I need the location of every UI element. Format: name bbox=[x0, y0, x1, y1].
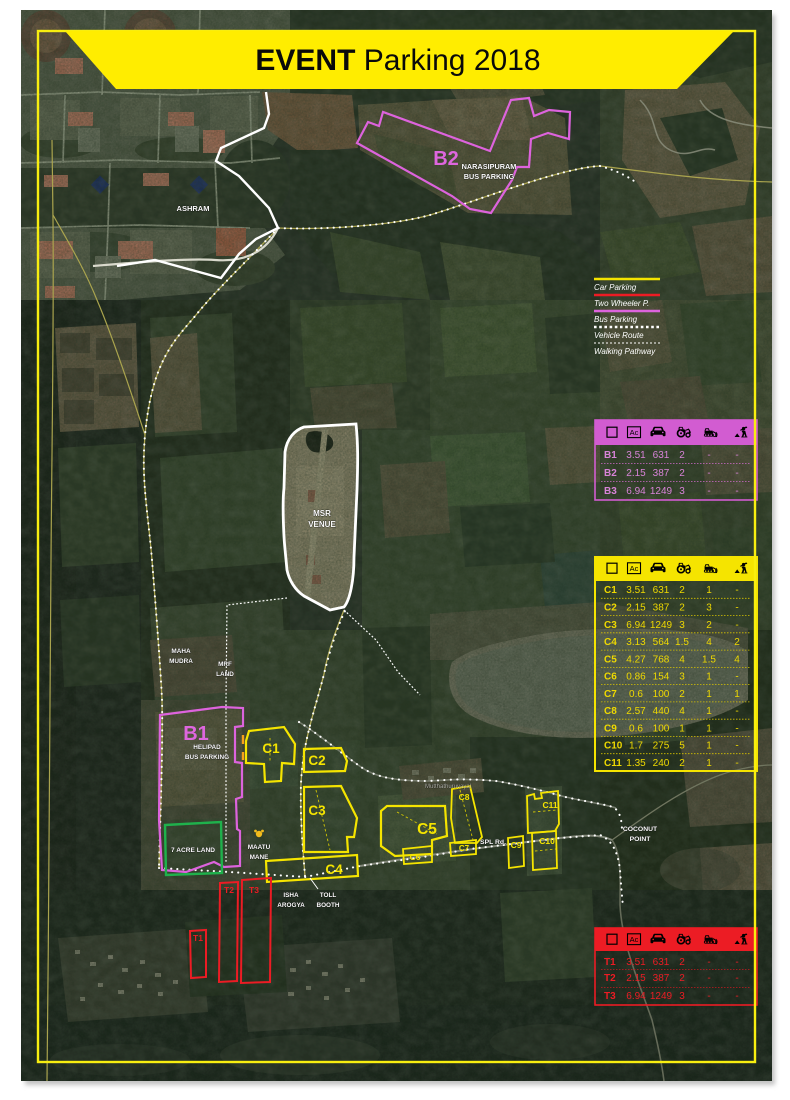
svg-text:1.7: 1.7 bbox=[629, 741, 643, 752]
svg-text:387: 387 bbox=[653, 468, 670, 479]
svg-text:387: 387 bbox=[653, 973, 670, 984]
svg-text:T2: T2 bbox=[224, 885, 234, 895]
svg-text:Mutthathuruvayal: Mutthathuruvayal bbox=[425, 784, 471, 790]
svg-text:Two Wheeler P.: Two Wheeler P. bbox=[594, 299, 649, 308]
svg-text:440: 440 bbox=[653, 706, 670, 717]
svg-text:1.5: 1.5 bbox=[702, 654, 716, 665]
svg-text:C2: C2 bbox=[604, 603, 617, 614]
svg-text:2: 2 bbox=[679, 468, 685, 479]
svg-text:2: 2 bbox=[679, 689, 685, 700]
svg-text:631: 631 bbox=[653, 957, 670, 968]
svg-text:2: 2 bbox=[679, 585, 685, 596]
svg-text:1: 1 bbox=[706, 672, 712, 683]
svg-text:0.86: 0.86 bbox=[626, 672, 646, 683]
svg-text:2.15: 2.15 bbox=[626, 973, 646, 984]
svg-text:3: 3 bbox=[679, 620, 685, 631]
svg-text:MSR: MSR bbox=[313, 509, 331, 518]
svg-text:3: 3 bbox=[679, 991, 685, 1002]
svg-text:-: - bbox=[735, 486, 738, 497]
svg-text:T3: T3 bbox=[249, 885, 259, 895]
svg-text:1249: 1249 bbox=[650, 991, 673, 1002]
svg-text:631: 631 bbox=[653, 585, 670, 596]
svg-text:B2: B2 bbox=[433, 148, 459, 170]
svg-text:T3: T3 bbox=[604, 991, 616, 1002]
svg-text:6.94: 6.94 bbox=[626, 991, 646, 1002]
svg-text:C9: C9 bbox=[511, 840, 522, 850]
svg-text:C6: C6 bbox=[410, 852, 421, 862]
svg-text:1: 1 bbox=[706, 741, 712, 752]
svg-text:1.5: 1.5 bbox=[675, 637, 689, 648]
svg-text:1: 1 bbox=[706, 723, 712, 734]
svg-text:5: 5 bbox=[679, 741, 685, 752]
svg-text:POINT: POINT bbox=[630, 836, 652, 843]
svg-text:7 ACRE LAND: 7 ACRE LAND bbox=[171, 847, 215, 854]
svg-text:2: 2 bbox=[706, 620, 712, 631]
svg-text:C8: C8 bbox=[604, 706, 617, 717]
svg-text:C1: C1 bbox=[604, 585, 617, 596]
svg-text:C7: C7 bbox=[604, 689, 617, 700]
svg-text:100: 100 bbox=[653, 689, 670, 700]
svg-text:C11: C11 bbox=[542, 800, 557, 810]
svg-text:1249: 1249 bbox=[650, 620, 673, 631]
svg-text:100: 100 bbox=[653, 723, 670, 734]
svg-text:T2: T2 bbox=[604, 973, 616, 984]
svg-text:MAATU: MAATU bbox=[248, 844, 271, 851]
svg-text:1.35: 1.35 bbox=[626, 758, 646, 769]
svg-text:Vehicle Route: Vehicle Route bbox=[594, 331, 644, 340]
svg-text:MUDRA: MUDRA bbox=[169, 658, 193, 665]
svg-text:-: - bbox=[707, 486, 710, 497]
svg-text:2: 2 bbox=[679, 973, 685, 984]
svg-text:1: 1 bbox=[734, 689, 740, 700]
svg-text:C4: C4 bbox=[604, 637, 617, 648]
svg-text:C11: C11 bbox=[604, 758, 622, 769]
svg-text:-: - bbox=[707, 973, 710, 984]
svg-text:T1: T1 bbox=[604, 957, 616, 968]
svg-text:B1: B1 bbox=[183, 723, 209, 745]
svg-text:564: 564 bbox=[653, 637, 670, 648]
svg-text:BOOTH: BOOTH bbox=[316, 902, 339, 909]
svg-text:C10: C10 bbox=[604, 741, 623, 752]
svg-text:BUS PARKING: BUS PARKING bbox=[185, 754, 229, 761]
svg-text:C3: C3 bbox=[308, 803, 326, 818]
svg-text:1: 1 bbox=[706, 689, 712, 700]
svg-text:C2: C2 bbox=[308, 753, 325, 768]
svg-text:2: 2 bbox=[734, 637, 740, 648]
svg-text:240: 240 bbox=[653, 758, 670, 769]
svg-text:MRF: MRF bbox=[218, 661, 232, 668]
svg-text:1: 1 bbox=[679, 723, 685, 734]
svg-text:2: 2 bbox=[679, 758, 685, 769]
svg-text:4.27: 4.27 bbox=[626, 654, 646, 665]
svg-text:-: - bbox=[707, 468, 710, 479]
svg-text:-: - bbox=[735, 620, 738, 631]
svg-text:VENUE: VENUE bbox=[308, 520, 336, 529]
svg-text:-: - bbox=[707, 957, 710, 968]
svg-text:C3: C3 bbox=[604, 620, 617, 631]
svg-text:C9: C9 bbox=[604, 723, 617, 734]
svg-text:2: 2 bbox=[679, 957, 685, 968]
svg-text:T1: T1 bbox=[193, 933, 203, 943]
svg-text:C4: C4 bbox=[325, 862, 343, 877]
svg-text:2.15: 2.15 bbox=[626, 603, 646, 614]
svg-text:3.13: 3.13 bbox=[626, 637, 646, 648]
svg-text:-: - bbox=[735, 741, 738, 752]
svg-text:B1: B1 bbox=[604, 450, 617, 461]
svg-text:275: 275 bbox=[653, 741, 670, 752]
svg-text:C5: C5 bbox=[417, 821, 437, 838]
svg-text:4: 4 bbox=[679, 654, 685, 665]
svg-text:C10: C10 bbox=[539, 836, 555, 846]
svg-text:SPL Rd.: SPL Rd. bbox=[480, 839, 506, 846]
svg-text:2: 2 bbox=[679, 603, 685, 614]
svg-text:-: - bbox=[735, 758, 738, 769]
svg-text:0.6: 0.6 bbox=[629, 723, 643, 734]
svg-text:AROGYA: AROGYA bbox=[277, 902, 305, 909]
svg-text:1: 1 bbox=[706, 585, 712, 596]
svg-text:ISHA: ISHA bbox=[283, 892, 299, 899]
svg-text:3.51: 3.51 bbox=[626, 450, 646, 461]
svg-text:NARASIPURAM: NARASIPURAM bbox=[462, 162, 517, 171]
svg-text:B3: B3 bbox=[604, 486, 617, 497]
svg-text:BUS PARKING: BUS PARKING bbox=[464, 172, 515, 181]
svg-text:C1: C1 bbox=[262, 741, 280, 756]
svg-text:Walking Pathway: Walking Pathway bbox=[594, 347, 656, 356]
svg-text:-: - bbox=[735, 957, 738, 968]
svg-text:3: 3 bbox=[679, 672, 685, 683]
svg-text:2: 2 bbox=[679, 450, 685, 461]
svg-text:COCONUT: COCONUT bbox=[623, 826, 658, 833]
svg-text:3.51: 3.51 bbox=[626, 585, 646, 596]
svg-text:B2: B2 bbox=[604, 468, 617, 479]
svg-text:4: 4 bbox=[679, 706, 685, 717]
svg-text:3.51: 3.51 bbox=[626, 957, 646, 968]
svg-text:-: - bbox=[735, 672, 738, 683]
svg-text:768: 768 bbox=[653, 654, 670, 665]
svg-text:6.94: 6.94 bbox=[626, 620, 646, 631]
svg-text:-: - bbox=[735, 585, 738, 596]
svg-text:-: - bbox=[707, 991, 710, 1002]
svg-text:387: 387 bbox=[653, 603, 670, 614]
svg-text:1: 1 bbox=[706, 758, 712, 769]
svg-text:-: - bbox=[707, 450, 710, 461]
svg-text:HELIPAD: HELIPAD bbox=[193, 744, 221, 751]
svg-text:TOLL: TOLL bbox=[320, 892, 337, 899]
svg-text:LAND: LAND bbox=[216, 671, 234, 678]
svg-text:3: 3 bbox=[679, 486, 685, 497]
svg-text:2.15: 2.15 bbox=[626, 468, 646, 479]
svg-text:C8: C8 bbox=[459, 792, 470, 802]
svg-text:631: 631 bbox=[653, 450, 670, 461]
svg-text:0.6: 0.6 bbox=[629, 689, 643, 700]
svg-text:C6: C6 bbox=[604, 672, 617, 683]
svg-text:154: 154 bbox=[653, 672, 670, 683]
svg-text:4: 4 bbox=[734, 654, 740, 665]
svg-text:6.94: 6.94 bbox=[626, 486, 646, 497]
svg-text:-: - bbox=[735, 468, 738, 479]
svg-text:ASHRAM: ASHRAM bbox=[177, 204, 210, 213]
svg-text:-: - bbox=[735, 450, 738, 461]
svg-text:4: 4 bbox=[706, 637, 712, 648]
svg-text:-: - bbox=[735, 706, 738, 717]
svg-text:C7: C7 bbox=[459, 844, 470, 853]
svg-text:Car Parking: Car Parking bbox=[594, 283, 637, 292]
svg-text:1: 1 bbox=[706, 706, 712, 717]
svg-text:2.57: 2.57 bbox=[626, 706, 646, 717]
svg-text:-: - bbox=[735, 991, 738, 1002]
svg-text:-: - bbox=[735, 603, 738, 614]
svg-text:3: 3 bbox=[706, 603, 712, 614]
svg-text:MAHA: MAHA bbox=[171, 648, 191, 655]
svg-text:-: - bbox=[735, 973, 738, 984]
svg-text:C5: C5 bbox=[604, 654, 617, 665]
svg-text:MANE: MANE bbox=[250, 854, 270, 861]
svg-text:EVENT Parking 2018: EVENT Parking 2018 bbox=[255, 44, 540, 77]
svg-text:1249: 1249 bbox=[650, 486, 673, 497]
svg-text:-: - bbox=[735, 723, 738, 734]
svg-text:Bus Parking: Bus Parking bbox=[594, 315, 638, 324]
